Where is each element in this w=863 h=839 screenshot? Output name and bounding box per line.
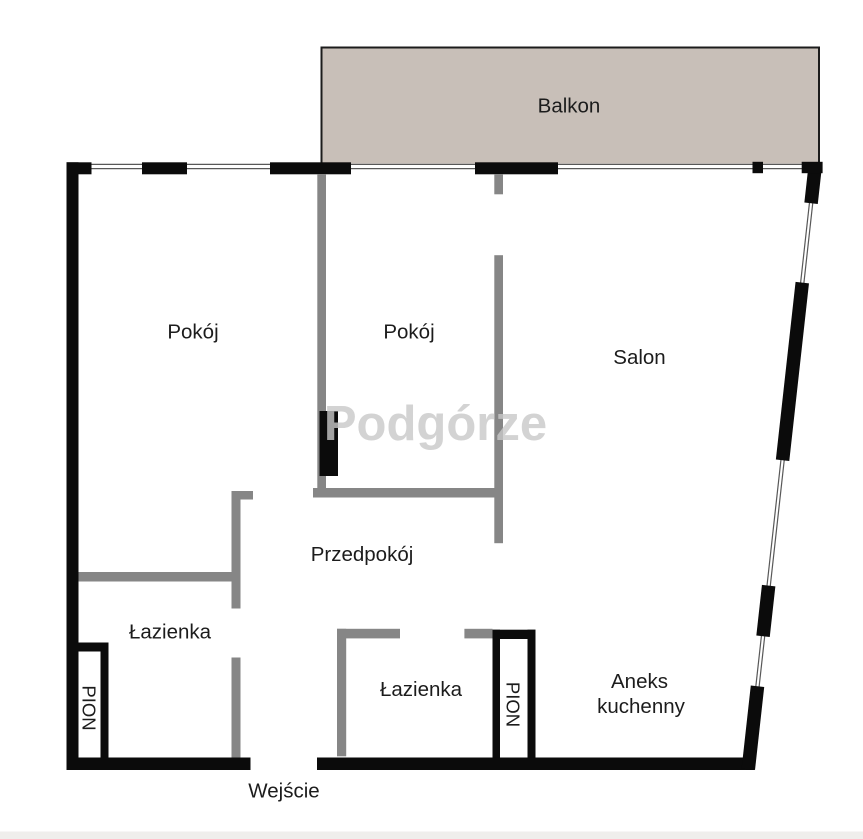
svg-text:Łazienka: Łazienka [129, 621, 212, 644]
svg-text:Aneks: Aneks [611, 670, 668, 693]
svg-text:Pokój: Pokój [383, 321, 434, 344]
svg-text:Łazienka: Łazienka [380, 678, 463, 701]
svg-text:Podgórze: Podgórze [324, 397, 547, 451]
svg-text:kuchenny: kuchenny [597, 695, 686, 718]
svg-text:Salon: Salon [613, 346, 665, 369]
svg-text:Pokój: Pokój [167, 321, 218, 344]
svg-text:Wejście: Wejście [248, 780, 319, 803]
svg-text:PION: PION [79, 685, 100, 730]
svg-text:PION: PION [502, 682, 523, 727]
svg-text:Przedpokój: Przedpokój [311, 543, 414, 566]
svg-text:Balkon: Balkon [538, 95, 601, 118]
